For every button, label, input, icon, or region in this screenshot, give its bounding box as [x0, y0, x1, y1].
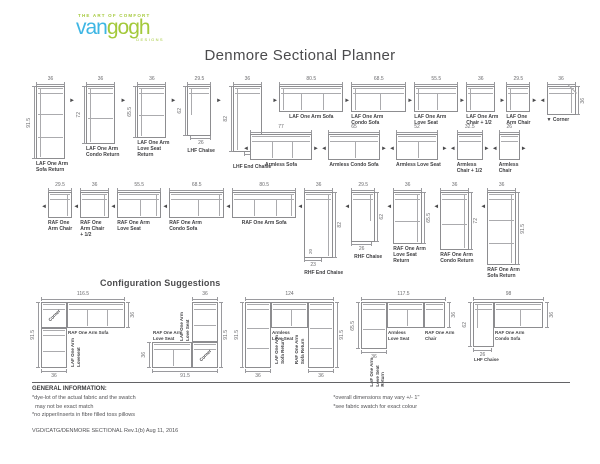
width-dimension: 36 — [487, 182, 516, 192]
seat-divider — [407, 309, 408, 326]
seat-divider — [489, 243, 514, 244]
height-dimension-value: 62 — [379, 214, 385, 220]
piece-label: RAF One ArmChair — [425, 330, 454, 341]
piece-label: LAF One ArmLove SeatReturn — [137, 140, 169, 158]
piece-laf-one-arm-love-seat — [414, 86, 458, 112]
general-information-columns: *dye-lot of the actual fabric and the sw… — [32, 394, 570, 420]
width-dimension: 29.5 — [187, 76, 211, 86]
backrest-line — [459, 136, 481, 142]
piece-laf-one-arm-sofa — [279, 86, 343, 112]
piece-label: Armless Condo Sofa — [328, 162, 380, 168]
seat-divider — [139, 115, 164, 116]
piece-laf-one-arm-sofa-return: 91.536LAF One ArmSofa Return — [26, 76, 68, 173]
piece-label: LAF One Arm Loveseat — [68, 336, 82, 368]
seat-divider — [87, 309, 88, 326]
width-dimension: 117.5 — [361, 291, 446, 301]
width-dimension: 36 — [466, 76, 495, 86]
seat-divider — [310, 328, 332, 329]
seat-divider — [380, 93, 381, 110]
height-dimension: 91.5 — [516, 192, 526, 265]
height-dimension-value: 65.5 — [426, 213, 432, 223]
height-dimension: 91.5 — [234, 302, 244, 368]
info-line: *no zipper/inserts in fibre filled toss … — [32, 411, 333, 420]
width-dimension: 36 — [137, 76, 166, 86]
piece-raf-one-arm-love-seat — [117, 192, 161, 218]
inner-dimension: 20 — [308, 249, 313, 254]
backrest-line — [194, 304, 216, 310]
piece-lhf-chaise — [187, 86, 211, 136]
piece-armless-condo-sofa: 65Armless Condo Sofa — [328, 124, 380, 168]
height-dimension: 36 — [447, 302, 457, 328]
piece-laf-one-arm-chair: 29.5LAF OneArm Chair — [506, 76, 530, 126]
height-dimension: 62 — [375, 192, 385, 242]
arm-line — [571, 88, 572, 113]
arm-line — [40, 88, 41, 157]
piece-raf-one-arm-sofa-return — [487, 192, 516, 265]
width-dimension: 36 — [41, 369, 67, 379]
arm-line — [104, 194, 105, 216]
piece-laf-one-arm-sofa-return — [36, 86, 65, 159]
piece-label: ArmlessLove Seat — [388, 330, 409, 341]
width-dimension: 26 — [473, 348, 492, 358]
width-dimension: 52 — [396, 124, 438, 134]
piece-label: RAF OneArm Chair+ 1/2 — [80, 220, 104, 238]
arrow-left-icon: ◄ — [388, 146, 396, 152]
seat-divider — [363, 329, 385, 330]
height-dimension: 91.5 — [219, 302, 229, 368]
arm-line — [283, 88, 284, 110]
piece-laf-one-arm-love-seat-return — [137, 86, 166, 138]
piece-laf-one-arm-condo-sofa: 68.5LAF One ArmCondo Sofa — [351, 76, 406, 126]
height-dimension: 72 — [469, 192, 479, 250]
piece-raf-one-arm-chair: 29.5RAF OneArm Chair — [48, 182, 72, 232]
arrow-left-icon: ◄ — [161, 204, 169, 210]
height-dimension: 91.5 — [30, 302, 40, 368]
width-dimension: 36 — [547, 76, 576, 86]
arm-line — [141, 88, 142, 136]
piece-laf-one-arm-condo-sofa — [351, 86, 406, 112]
piece-raf-one-arm-chair-1-2 — [80, 192, 109, 218]
general-information-col1: *dye-lot of the actual fabric and the sw… — [32, 394, 333, 420]
piece-label: RAF OneArm Chair — [48, 220, 72, 232]
config-3: LAF One Arm Sofa ReturnArmlessLove SeatR… — [234, 291, 346, 386]
height-dimension-value: 36 — [451, 312, 457, 318]
width-dimension: 26 — [499, 124, 520, 134]
seat-divider — [88, 118, 113, 119]
width-dimension: 36 — [308, 369, 334, 379]
backrest-line — [496, 304, 541, 310]
seat-divider — [437, 93, 438, 110]
width-dimension: 29.5 — [48, 182, 72, 192]
piece-label: RAF One ArmLove Seat — [153, 330, 182, 341]
height-dimension-value: 36 — [549, 312, 555, 318]
width-dimension: 91.5 — [152, 369, 218, 379]
piece-label: ArmlessChair + 1/2 — [457, 162, 482, 174]
seat-divider — [323, 93, 324, 110]
arm-line — [291, 194, 292, 216]
info-line: *see fabric swatch for exact colour — [333, 403, 419, 412]
seat-divider — [254, 199, 255, 216]
seat-divider — [355, 141, 356, 158]
piece-label: RAF One ArmLove SeatReturn — [393, 246, 426, 264]
seat-divider — [194, 325, 216, 326]
arm-line — [470, 88, 471, 110]
piece-label: ArmlessLove Seat — [272, 330, 293, 341]
piece-label: RAF One ArmCondo Sofa — [169, 220, 202, 232]
seat-divider — [418, 141, 419, 158]
arrow-right-icon: ► — [458, 98, 466, 104]
backrest-line — [281, 88, 341, 94]
width-dimension: 29.5 — [351, 182, 375, 192]
height-dimension-value: 82 — [337, 222, 343, 228]
seat-divider — [292, 141, 293, 158]
width-dimension: 55.5 — [414, 76, 458, 86]
height-dimension: 36 — [545, 302, 555, 328]
arrow-right-icon: ► — [520, 146, 528, 152]
piece-raf-one-arm-love-seat: 55.5RAF One ArmLove Seat — [117, 182, 161, 232]
piece-armless-condo-sofa — [328, 134, 380, 160]
general-information-section: GENERAL INFORMATION: *dye-lot of the act… — [32, 382, 570, 420]
piece-label: RAF One Arm Sofa Return — [293, 330, 307, 368]
seat-divider — [442, 224, 467, 225]
width-dimension: 36 — [80, 182, 109, 192]
piece-label: RAF One ArmCondo Sofa — [495, 330, 524, 341]
piece-raf-one-arm-sofa: 80.5RAF One Arm Sofa — [232, 182, 296, 226]
backrest-line — [247, 304, 269, 310]
piece-label: RHF End Chaise — [304, 270, 343, 276]
piece-raf-one-arm-chair — [424, 302, 445, 328]
piece-corner: 3636▼ Corner — [547, 76, 586, 123]
height-dimension: 65.5 — [350, 302, 360, 349]
seat-divider — [395, 221, 420, 222]
width-dimension: 77 — [250, 124, 312, 134]
backrest-line — [88, 88, 113, 94]
configurations-heading: Configuration Suggestions — [100, 278, 221, 288]
piece-laf-one-arm-chair-1-2 — [466, 86, 495, 112]
width-dimension: 116.5 — [41, 291, 125, 301]
page-title: Denmore Sectional Planner — [0, 47, 600, 64]
arrow-left-icon: ◄ — [449, 146, 457, 152]
seat-divider — [38, 137, 63, 138]
arm-line — [418, 88, 419, 110]
piece-raf-one-arm-condo-sofa: 68.5RAF One ArmCondo Sofa — [169, 182, 224, 232]
width-dimension: 36 — [361, 350, 387, 360]
arm-line — [511, 194, 512, 263]
config-1: CornerRAF One Arm SofaLAF One Arm Lovese… — [30, 291, 137, 386]
width-dimension: 36 — [192, 291, 218, 301]
width-dimension: 36 — [304, 182, 333, 192]
height-dimension: 91.5 — [335, 302, 345, 368]
piece-raf-one-arm-love-seat-return — [393, 192, 422, 244]
piece-rhf-chaise — [351, 192, 375, 242]
height-dimension: 82 — [333, 192, 343, 258]
height-dimension: 36 — [141, 342, 151, 368]
piece-label: LAF One Arm Sofa — [279, 114, 343, 120]
arm-line — [156, 194, 157, 216]
arm-line — [67, 194, 68, 216]
backrest-line — [310, 304, 332, 310]
piece-raf-one-arm-condo-sofa — [494, 302, 543, 328]
height-dimension-value: 91.5 — [339, 330, 345, 340]
backrest-line — [69, 304, 123, 310]
piece-raf-one-arm-sofa-return: 3691.5RAF One ArmSofa Return — [487, 182, 526, 279]
piece-label: RAF One Arm Sofa — [232, 220, 296, 226]
height-dimension: 91.5 — [26, 86, 36, 159]
vangogh-logo: THE ART OF COMFORT vangogh DESIGNS — [76, 13, 172, 42]
backrest-line — [508, 88, 528, 94]
piece-raf-one-arm-chair-1-2: 36RAF OneArm Chair+ 1/2 — [80, 182, 109, 238]
document-reference: VGD/CATG/DENMORE SECTIONAL Rev.1(b) Aug … — [32, 428, 178, 434]
arrow-left-icon: ◄ — [479, 204, 487, 210]
seat-divider — [107, 309, 108, 326]
backrest-line — [234, 194, 294, 200]
piece-label: RHF Chaise — [351, 254, 385, 260]
width-dimension: 65 — [328, 124, 380, 134]
logo-gogh: gogh — [107, 16, 150, 39]
arrow-right-icon: ► — [380, 146, 388, 152]
arrow-left-icon: ◄ — [385, 204, 393, 210]
arm-line — [219, 194, 220, 216]
general-information-heading: GENERAL INFORMATION: — [32, 386, 570, 392]
width-dimension: 68.5 — [351, 76, 406, 86]
backrest-line — [235, 88, 260, 94]
piece-corner — [547, 86, 576, 115]
arrow-left-icon: ◄ — [40, 204, 48, 210]
piece-armless-love-seat — [387, 302, 424, 328]
arrow-right-icon: ► — [406, 98, 414, 104]
width-dimension: 32.5 — [457, 124, 483, 134]
arrow-left-icon: ◄ — [320, 146, 328, 152]
piece-raf-one-arm-chair — [48, 192, 72, 218]
arm-line — [477, 304, 478, 328]
backrest-line — [353, 88, 404, 94]
width-dimension: 80.5 — [279, 76, 343, 86]
arrow-left-icon: ◄ — [343, 204, 351, 210]
piece-armless-chair-1-2: 32.5ArmlessChair + 1/2 — [457, 124, 483, 174]
seat-divider — [276, 199, 277, 216]
piece-laf-one-arm-sofa: 80.5LAF One Arm Sofa — [279, 76, 343, 120]
height-dimension: 65.5 — [422, 192, 432, 244]
arm-line — [328, 194, 329, 256]
arrow-right-icon: ► — [343, 98, 351, 104]
arm-line — [355, 88, 356, 110]
piece-label: RAF One ArmLove Seat — [117, 220, 150, 232]
piece-label: Armless Sofa — [250, 162, 312, 168]
backrest-line — [38, 88, 63, 94]
arrow-right-icon: ► — [215, 98, 223, 104]
backrest-line — [330, 136, 378, 142]
info-line: may not be exact match — [32, 403, 333, 412]
height-dimension-value: 36 — [580, 98, 586, 104]
backrest-line — [252, 136, 310, 142]
page: { "logo": { "tagline": "THE ART OF COMFO… — [0, 0, 600, 464]
piece-armless-chair — [499, 134, 520, 160]
backrest-line — [363, 304, 385, 310]
width-dimension: 26 — [351, 242, 372, 252]
seat-divider — [140, 199, 141, 216]
seat-divider — [38, 114, 63, 115]
width-dimension: 36 — [36, 76, 65, 86]
arrow-right-icon: ► — [483, 146, 491, 152]
height-dimension: 62 — [462, 302, 472, 347]
width-dimension: 98 — [473, 291, 544, 301]
seat-divider — [198, 199, 199, 216]
backrest-line — [468, 88, 493, 94]
piece-lhf-chaise: 6229.526LHF Chaise — [177, 76, 215, 154]
arrow-left-icon: ◄ — [72, 204, 80, 210]
piece-laf-one-arm-chair — [506, 86, 530, 112]
width-dimension: 68.5 — [169, 182, 224, 192]
height-dimension: 36 — [126, 302, 136, 328]
info-line: *overall dimensions may vary +/- 1" — [333, 394, 419, 403]
backrest-line — [501, 136, 518, 142]
backrest-line — [119, 194, 159, 200]
backrest-line — [426, 304, 443, 310]
piece-rhf-end-chaise: 36208223RHF End Chaise — [304, 182, 343, 276]
piece-armless-love-seat — [396, 134, 438, 160]
arrow-left-icon: ◄ — [539, 98, 547, 104]
arrow-right-icon: ► — [68, 98, 76, 104]
piece-armless-love-seat — [271, 302, 308, 328]
arrow-left-icon: ◄ — [242, 146, 250, 152]
piece-armless-sofa: 77Armless Sofa — [250, 124, 312, 168]
seat-divider — [310, 348, 332, 349]
piece-raf-one-arm-love-seat-return: 3665.5RAF One ArmLove SeatReturn — [393, 182, 432, 264]
width-dimension: 36 — [233, 76, 262, 86]
backrest-line — [43, 330, 65, 336]
piece-laf-one-arm-loveseat — [41, 328, 67, 368]
arm-line — [464, 194, 465, 248]
arrow-left-icon: ◄ — [296, 204, 304, 210]
height-dimension: 36 — [576, 86, 586, 115]
seat-divider — [247, 348, 269, 349]
logo-van: van — [76, 16, 107, 39]
seat-divider — [301, 93, 302, 110]
general-information-col2: *overall dimensions may vary +/- 1"*see … — [333, 394, 419, 420]
arm-line — [510, 88, 511, 110]
arrow-right-icon: ► — [531, 98, 539, 104]
arrow-left-icon: ◄ — [109, 204, 117, 210]
logo-name: vangogh — [76, 18, 172, 37]
height-dimension: 82 — [223, 86, 233, 152]
piece-laf-one-arm-sofa-return — [245, 302, 271, 368]
width-dimension: 26 — [190, 136, 211, 146]
backrest-line — [154, 344, 190, 350]
piece-raf-one-arm-sofa — [232, 192, 296, 218]
width-dimension: 36 — [86, 76, 115, 86]
piece-raf-one-arm-condo-sofa — [169, 192, 224, 218]
piece-label: ▼ Corner — [547, 117, 570, 123]
piece-armless-chair: 26ArmlessChair — [499, 124, 520, 174]
backrest-line — [171, 194, 222, 200]
arrow-left-icon: ◄ — [224, 204, 232, 210]
seat-divider — [291, 309, 292, 326]
piece-corner: Corner — [41, 302, 67, 328]
width-dimension: 36 — [393, 182, 422, 192]
piece-laf-one-arm-condo-return: 7236LAF One ArmCondo Return — [76, 76, 119, 158]
piece-label: LAF One ArmSofa Return — [36, 161, 68, 173]
seat-divider — [43, 351, 65, 352]
config-5: LHF ChaiseRAF One ArmCondo Sofa98623626 — [462, 291, 556, 365]
backrest-line — [389, 304, 422, 310]
config-2: LAF One Arm Love SeatCornerRAF One ArmLo… — [141, 291, 230, 386]
piece-raf-one-arm-condo-return: 3672RAF One ArmCondo Return — [440, 182, 479, 264]
width-dimension: 55.5 — [117, 182, 161, 192]
backrest-line — [398, 136, 436, 142]
seat-divider — [247, 328, 269, 329]
arrow-right-icon: ► — [271, 98, 279, 104]
seat-divider — [272, 141, 273, 158]
piece-label: ArmlessChair — [499, 162, 519, 174]
arrow-right-icon: ► — [441, 146, 449, 152]
arrow-right-icon: ► — [169, 98, 177, 104]
piece-lhf-chaise — [473, 302, 494, 347]
piece-armless-chair-1-2 — [457, 134, 483, 160]
height-dimension: 65.5 — [127, 86, 137, 138]
piece-label: LHF Chaise — [187, 148, 215, 154]
backrest-line — [139, 88, 164, 94]
piece-corner: Corner — [192, 342, 218, 368]
piece-label: RAF One ArmSofa Return — [487, 267, 520, 279]
sectional-pieces-diagram: 91.536LAF One ArmSofa Return►7236LAF One… — [26, 76, 578, 276]
piece-label: RAF One Arm Sofa — [68, 330, 108, 336]
arrow-right-icon: ► — [498, 98, 506, 104]
seat-divider — [173, 349, 174, 366]
piece-laf-one-arm-love-seat-return: 65.536LAF One ArmLove SeatReturn — [127, 76, 169, 158]
arm-line — [191, 88, 192, 115]
piece-label: Armless Love Seat — [396, 162, 441, 168]
width-dimension: 36 — [245, 369, 271, 379]
width-dimension: 124 — [245, 291, 334, 301]
piece-label: RAF One ArmCondo Return — [440, 252, 473, 264]
info-line: *dye-lot of the actual fabric and the sw… — [32, 394, 333, 403]
config-4: LAF One Arm Love Seat ReturnArmlessLove … — [350, 291, 458, 367]
height-dimension: 72 — [76, 86, 86, 144]
piece-armless-sofa — [250, 134, 312, 160]
width-dimension: 29.5 — [506, 76, 530, 86]
piece-raf-one-arm-sofa-return — [308, 302, 334, 368]
raf-and-rhf-pieces-row: ◄29.5RAF OneArm Chair◄36RAF OneArm Chair… — [40, 182, 526, 279]
width-dimension: 36 — [440, 182, 469, 192]
arrow-left-icon: ◄ — [491, 146, 499, 152]
arm-line — [417, 194, 418, 242]
piece-rhf-chaise: 29.56226RHF Chaise — [351, 182, 385, 260]
seat-divider — [520, 309, 521, 326]
armless-pieces-row: ◄77Armless Sofa►◄65Armless Condo Sofa►◄5… — [242, 124, 528, 174]
piece-laf-one-arm-love-seat — [192, 302, 218, 342]
arm-line — [370, 194, 371, 221]
height-dimension-value: 36 — [130, 312, 136, 318]
height-dimension-value: 91.5 — [520, 224, 526, 234]
height-dimension: 62 — [177, 86, 187, 136]
backrest-line — [273, 304, 306, 310]
seat-divider — [489, 220, 514, 221]
piece-rhf-end-chaise: 20 — [304, 192, 333, 258]
arm-line — [90, 88, 91, 142]
piece-raf-one-arm-condo-return — [440, 192, 469, 250]
configuration-suggestions: CornerRAF One Arm SofaLAF One Arm Lovese… — [30, 291, 556, 386]
height-dimension-value: 72 — [473, 218, 479, 224]
piece-raf-one-arm-sofa — [67, 302, 125, 328]
piece-laf-one-arm-love-seat-return — [361, 302, 387, 349]
piece-label: LAF One ArmCondo Return — [86, 146, 119, 158]
arrow-left-icon: ◄ — [432, 204, 440, 210]
height-dimension-value: 91.5 — [223, 330, 229, 340]
backrest-line — [189, 88, 209, 94]
arrow-right-icon: ► — [119, 98, 127, 104]
piece-laf-one-arm-condo-return — [86, 86, 115, 144]
piece-laf-one-arm-chair-1-2: 36LAF One ArmChair + 1/2 — [466, 76, 498, 126]
